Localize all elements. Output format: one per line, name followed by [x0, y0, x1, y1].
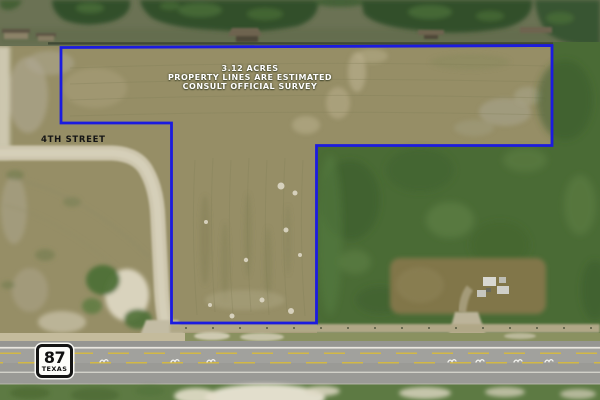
texas-highway-87-sign: 87 TEXAS — [36, 344, 73, 378]
acreage-annotation: 3.12 ACRES PROPERTY LINES ARE ESTIMATED … — [160, 64, 340, 91]
highway-state-label: TEXAS — [42, 365, 68, 373]
fog-line-bottom — [0, 372, 600, 373]
aerial-photo — [0, 0, 600, 400]
acreage-line: 3.12 ACRES — [160, 64, 340, 73]
aerial-property-listing: 3.12 ACRES PROPERTY LINES ARE ESTIMATED … — [0, 0, 600, 400]
highway-number: 87 — [44, 350, 65, 365]
fog-line-top — [0, 347, 600, 349]
disclaimer-line-1: PROPERTY LINES ARE ESTIMATED — [160, 73, 340, 82]
street-label: 4TH STREET — [41, 135, 106, 145]
disclaimer-line-2: CONSULT OFFICIAL SURVEY — [160, 82, 340, 91]
bottom-shoulder — [0, 383, 600, 400]
bulkhead — [48, 42, 554, 44]
